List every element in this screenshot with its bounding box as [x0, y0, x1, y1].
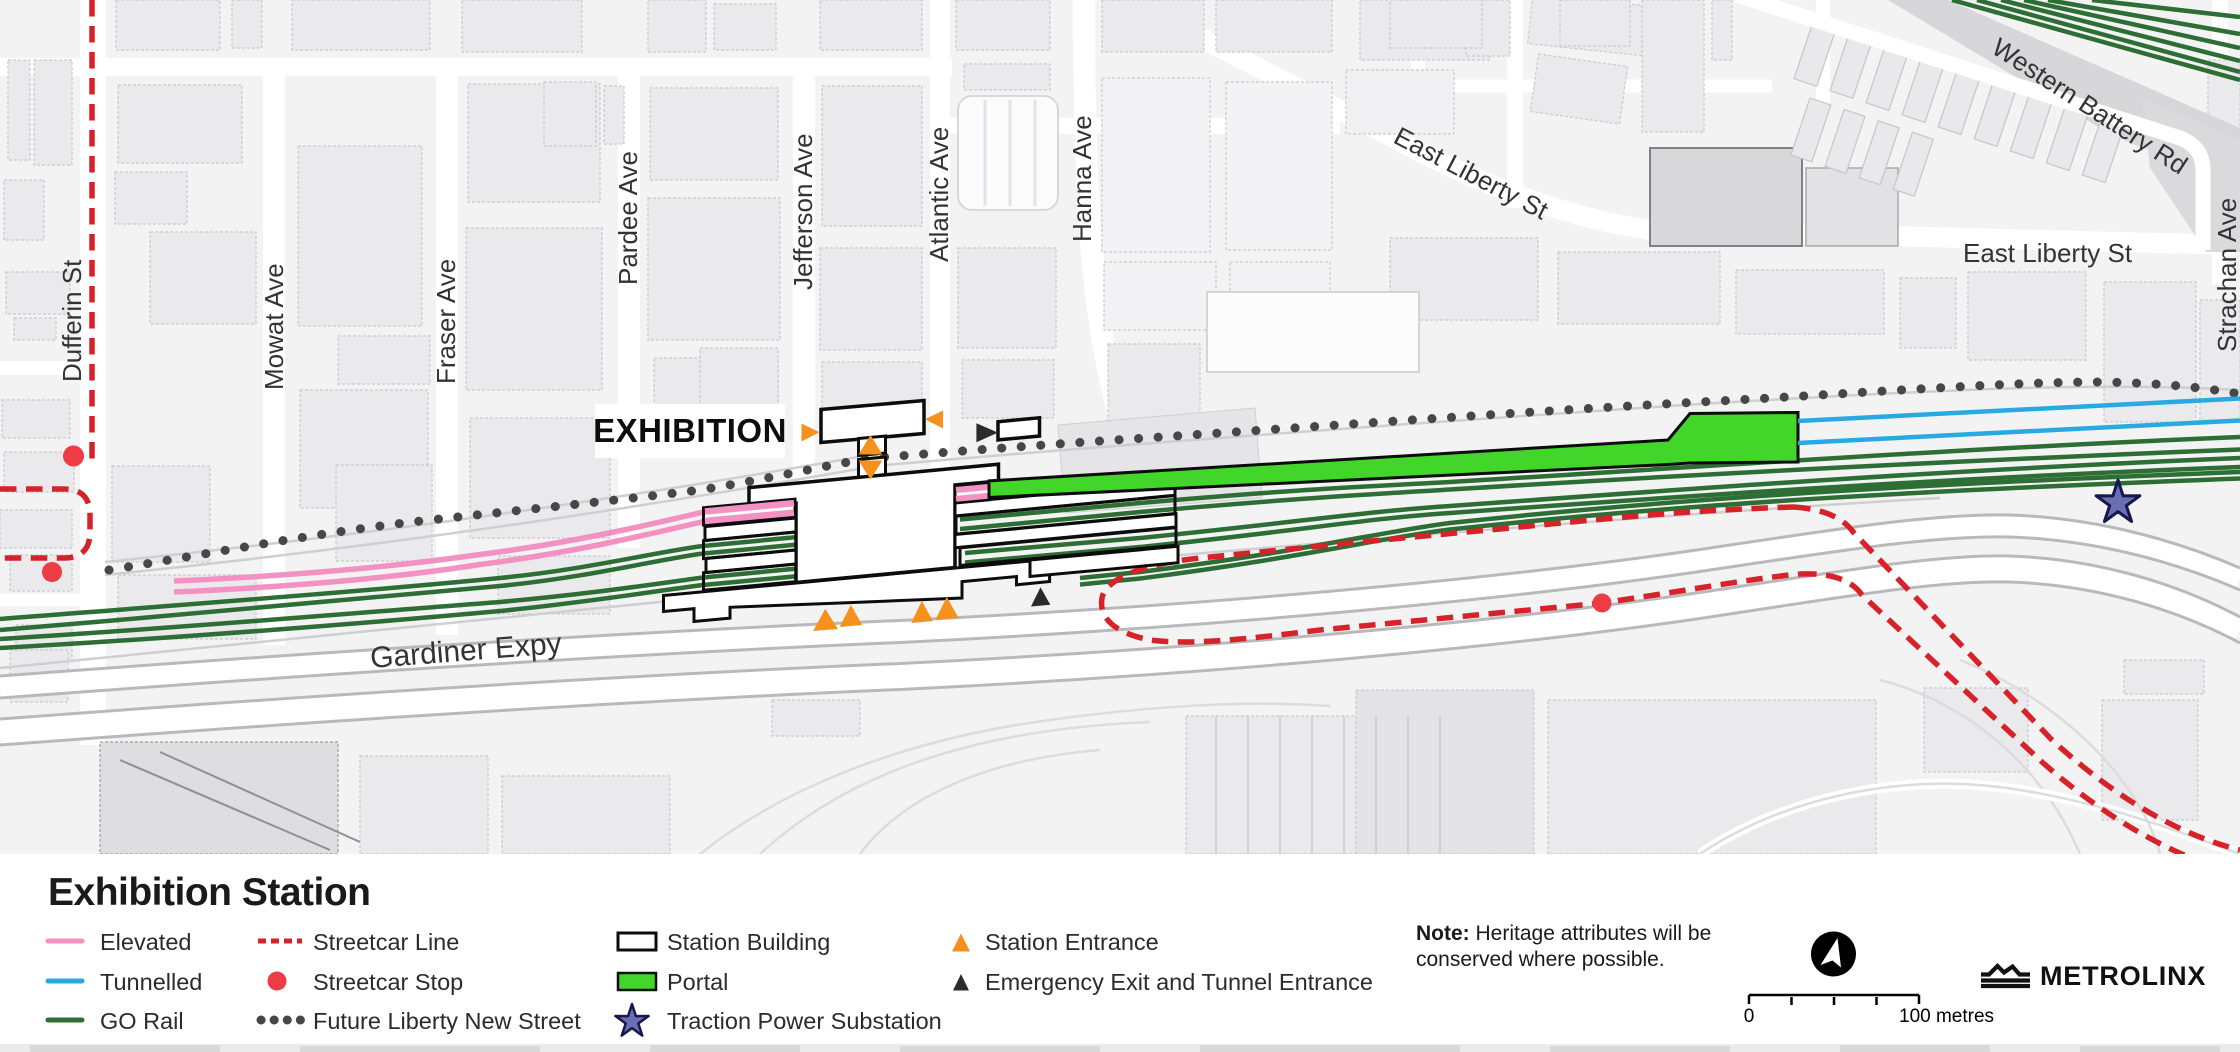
svg-text:Elevated: Elevated	[100, 929, 191, 955]
svg-text:East Liberty St: East Liberty St	[1963, 238, 2133, 268]
svg-text:100 metres: 100 metres	[1899, 1006, 1994, 1027]
svg-text:GO Rail: GO Rail	[100, 1008, 184, 1034]
svg-text:Fraser Ave: Fraser Ave	[431, 259, 461, 384]
svg-text:Dufferin St: Dufferin St	[57, 259, 87, 382]
svg-text:Atlantic Ave: Atlantic Ave	[924, 127, 954, 262]
svg-text:METROLINX: METROLINX	[2040, 961, 2206, 991]
svg-text:EXHIBITION: EXHIBITION	[593, 412, 787, 449]
svg-text:Exhibition Station: Exhibition Station	[48, 871, 370, 914]
svg-text:conserved where possible.: conserved where possible.	[1416, 948, 1665, 971]
svg-text:Hanna Ave: Hanna Ave	[1067, 115, 1097, 242]
svg-text:Mowat Ave: Mowat Ave	[259, 263, 289, 390]
svg-text:Tunnelled: Tunnelled	[100, 969, 202, 995]
svg-text:Future Liberty New Street: Future Liberty New Street	[313, 1008, 581, 1034]
svg-text:Emergency Exit and Tunnel Entr: Emergency Exit and Tunnel Entrance	[985, 969, 1373, 995]
svg-text:Station Entrance: Station Entrance	[985, 929, 1159, 955]
svg-text:Note: Heritage attributes will: Note: Heritage attributes will be	[1416, 922, 1711, 945]
svg-text:Traction Power Substation: Traction Power Substation	[667, 1008, 942, 1034]
svg-text:Streetcar Stop: Streetcar Stop	[313, 969, 463, 995]
svg-text:0: 0	[1744, 1006, 1755, 1027]
svg-text:Pardee Ave: Pardee Ave	[613, 151, 643, 285]
svg-text:Jefferson Ave: Jefferson Ave	[788, 133, 818, 290]
svg-text:Streetcar Line: Streetcar Line	[313, 929, 459, 955]
svg-text:Strachan Ave: Strachan Ave	[2212, 198, 2240, 352]
svg-text:Portal: Portal	[667, 969, 728, 995]
svg-text:Station Building: Station Building	[667, 929, 830, 955]
